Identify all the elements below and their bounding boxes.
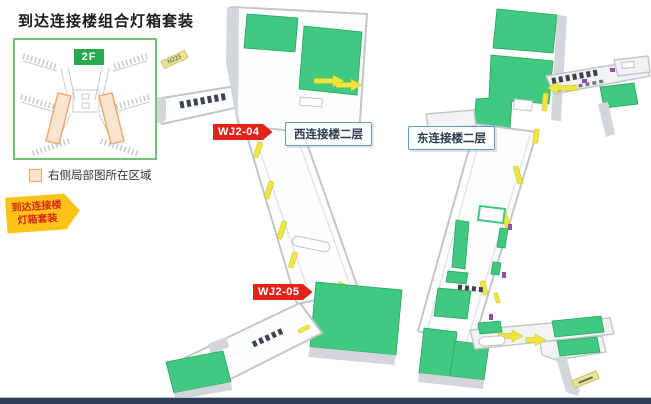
- west-building-plan: [146, 7, 402, 400]
- page-title: 到达连接楼组合灯箱套装: [18, 10, 194, 31]
- east-room-green: [434, 288, 471, 319]
- east-room-green: [474, 55, 553, 129]
- west-room-green: [244, 14, 298, 52]
- west-building-label: 西连接楼二层: [285, 122, 372, 146]
- east-room-green: [446, 271, 468, 284]
- lightbox-marker: [494, 293, 501, 304]
- east-room-green: [478, 321, 502, 334]
- legend-highlight-swatch: [29, 169, 42, 182]
- east-room-green: [493, 9, 557, 53]
- slide: 到达连接楼组合灯箱套装 2F: [0, 0, 651, 404]
- footer-bar: [0, 397, 651, 404]
- callout-line2: 灯箱套装: [17, 212, 58, 228]
- east-building-plan: [418, 9, 650, 396]
- legend-label: 右侧局部图所在区域: [48, 167, 152, 183]
- highlight-west-connector: [46, 93, 71, 144]
- east-room-green: [491, 262, 501, 275]
- lightbox-code-wj2-04: WJ2-04: [213, 124, 273, 140]
- east-building-label: 东连接楼二层: [408, 126, 495, 150]
- highlight-east-connector: [99, 93, 124, 144]
- west-room-green: [310, 282, 402, 355]
- lightbox-code-wj2-05: WJ2-05: [253, 284, 313, 300]
- floor-badge: 2F: [74, 49, 104, 65]
- legend-row: 右侧局部图所在区域: [29, 167, 152, 183]
